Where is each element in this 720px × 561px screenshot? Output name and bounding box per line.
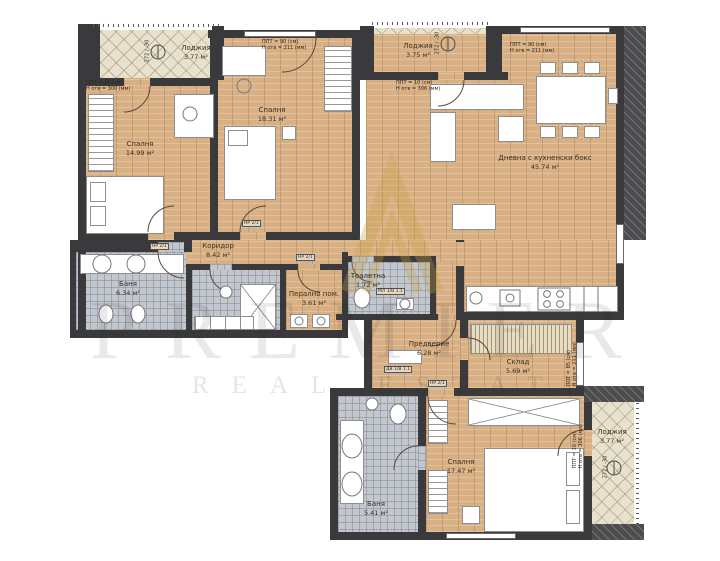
room-area: 5.41 м² (348, 509, 404, 517)
room-area: 3.77 м² (588, 437, 636, 445)
room-label-bath-2: Баня 5.41 м² (348, 500, 404, 517)
watermark-brand-tagline: REAL ESTATE (192, 372, 604, 400)
sink-icon (93, 255, 111, 273)
level-mark: 272 / -30 (602, 456, 608, 479)
room-name: Спалня (100, 140, 180, 149)
room-area: 17.47 м² (428, 467, 494, 475)
door-tag: НР 2/1 (150, 243, 169, 250)
room-label-living: Дневна с кухненски бокс 45.74 м² (480, 154, 610, 171)
spec-line: Н отв = 300 (мм) (86, 86, 130, 92)
sink-icon (342, 472, 362, 496)
room-area: 18.31 м² (232, 115, 312, 123)
room-area: 8.42 м² (188, 251, 248, 259)
room-area: 3.77 м² (168, 53, 224, 61)
room-label-loggia-bottom-right: Лоджия 3.77 м² (588, 428, 636, 445)
room-label-bedroom-bottom: Спалня 17.47 м² (428, 458, 494, 475)
spec-line: Н отв = 306 (мм) (396, 86, 440, 92)
room-name: Дневна с кухненски бокс (480, 154, 610, 163)
chair-icon (237, 79, 251, 93)
chair-icon (183, 107, 197, 121)
room-area: 45.74 м² (480, 163, 610, 171)
opening-spec: ППТ = 10 (см) Н отв = 300 (мм) (86, 80, 130, 93)
room-name: Баня (348, 500, 404, 509)
floor-plan: Спалня 14.99 м² Спалня 18.31 м² Дневна с… (0, 0, 720, 561)
level-mark: 272 / -30 (434, 32, 440, 55)
room-name: Коридор (188, 242, 248, 251)
room-label-corridor: Коридор 8.42 м² (188, 242, 248, 259)
door-tag: НР 2/1 (296, 254, 315, 261)
room-name: Спалня (232, 106, 312, 115)
level-mark: 272 / -30 (144, 40, 150, 63)
opening-spec: ППТ = 90 (см) Н отв = 211 (мм) (262, 39, 306, 52)
spec-line: Н отв = 306 (мм) (578, 424, 584, 468)
opening-spec: ППТ = 90 (см) Н отв = 211 (мм) (510, 42, 554, 55)
opening-spec: ППТ = 10 (см) Н отв = 306 (мм) (396, 80, 440, 93)
room-name: Тоалетна (340, 272, 396, 281)
door-tag: НР 2/1 (242, 220, 261, 227)
sink-icon (127, 255, 145, 273)
room-name: Спалня (428, 458, 494, 467)
opening-spec: ППТ = 10 (см) Н отв = 306 (мм) (572, 424, 585, 468)
watermark-brand-name: PREMIER (90, 282, 650, 379)
toilet-icon (390, 404, 406, 424)
sink-icon (342, 434, 362, 458)
room-label-bedroom-left: Спалня 14.99 м² (100, 140, 180, 157)
room-area: 14.99 м² (100, 149, 180, 157)
room-name: Лоджия (588, 428, 636, 437)
spec-line: Н отв = 211 (мм) (262, 45, 306, 51)
room-name: Лоджия (168, 44, 224, 53)
room-label-loggia-top-left: Лоджия 3.77 м² (168, 44, 224, 61)
spec-line: Н отв = 211 (мм) (510, 48, 554, 54)
room-label-bedroom-middle: Спалня 18.31 м² (232, 106, 312, 123)
